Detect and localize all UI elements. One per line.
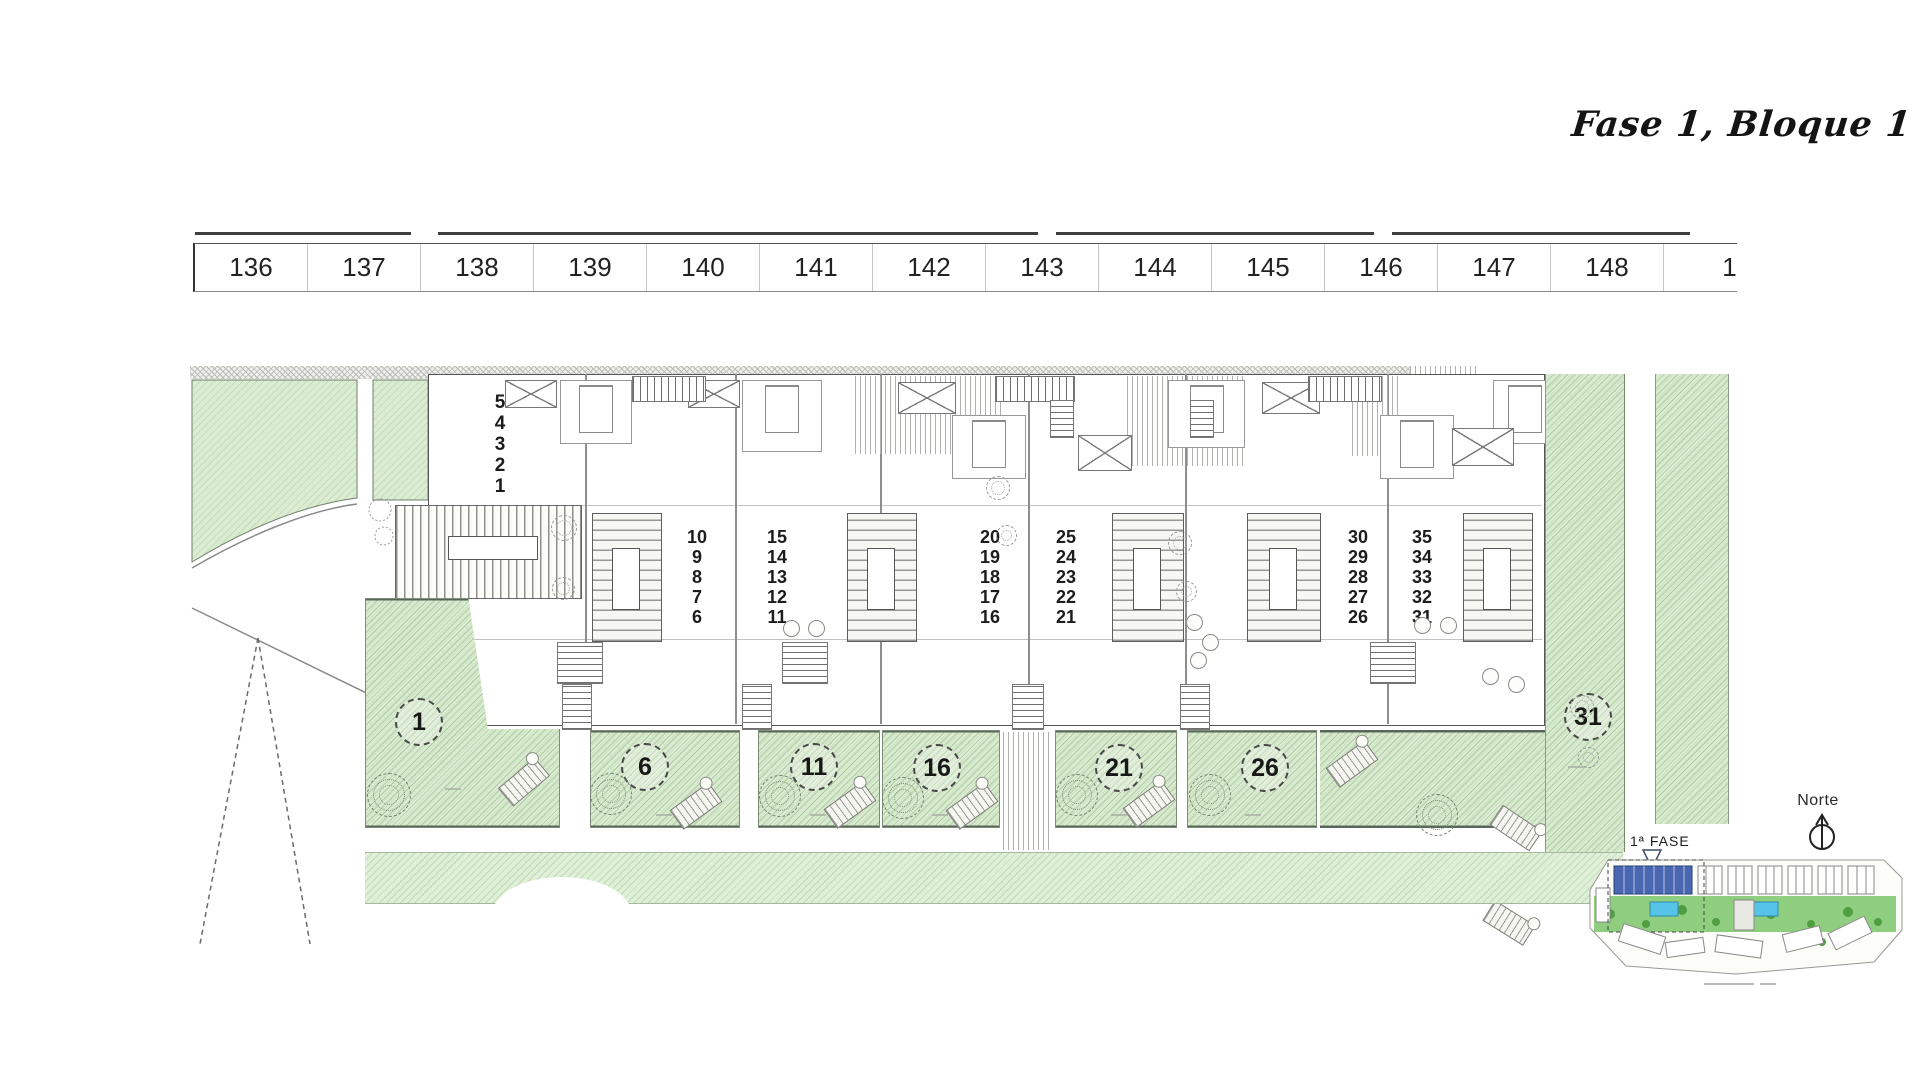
unit-number: 25 (1056, 527, 1076, 547)
driveway-dashed-line (200, 638, 258, 944)
unit-number: 30 (1348, 527, 1368, 547)
plot-number: 6 (638, 753, 652, 782)
ruler-top-line (195, 232, 411, 235)
bed-icon (972, 420, 1006, 468)
phase-label: 1ª FASE (1630, 833, 1690, 849)
round-table-icon (783, 620, 800, 637)
plot-number-circle: 21 (1095, 744, 1143, 792)
plot-number: 26 (1251, 754, 1279, 783)
lounger-icon (1489, 805, 1542, 852)
ruler-cell: 137 (307, 244, 420, 291)
unit-number: 34 (1412, 547, 1432, 567)
tree-icon (551, 515, 577, 541)
north-label: Norte (1786, 792, 1850, 810)
unit-number: 17 (980, 587, 1000, 607)
area-text-smudge (810, 814, 826, 816)
dining-table-icon (448, 536, 538, 560)
tree-icon (1416, 794, 1458, 836)
unit-number: 24 (1056, 547, 1076, 567)
area-text-smudge (932, 814, 948, 816)
plot-number-circle: 16 (913, 744, 961, 792)
unit-number: 4 (495, 413, 506, 434)
ruler-cell: 138 (420, 244, 533, 291)
entry-stair-icon (562, 684, 592, 730)
shaft-x-icon (1078, 435, 1132, 471)
area-text-smudge (445, 788, 461, 790)
tree-icon (367, 773, 411, 817)
dining-table-icon (1483, 548, 1511, 610)
site-plan-drawing: Fase 1, Bloque 1 136 137 138 139 140 141… (0, 0, 1920, 1080)
tree-icon (1056, 774, 1098, 816)
ruler-cell: 142 (872, 244, 985, 291)
bedroom (560, 380, 632, 444)
lounger-icon (1326, 740, 1379, 788)
unit-number: 23 (1056, 567, 1076, 587)
bed-icon (1400, 420, 1434, 468)
unit-number: 6 (692, 607, 702, 627)
party-wall (735, 374, 737, 724)
ruler-cell: 140 (646, 244, 759, 291)
unit-number: 13 (767, 567, 787, 587)
interior-wall (430, 505, 1542, 506)
unit-number: 21 (1056, 607, 1076, 627)
unit-number-stack: 15 14 13 12 11 (754, 527, 800, 627)
unit-number: 7 (692, 587, 702, 607)
unit-number: 2 (495, 455, 506, 476)
garden-strip-hatch (373, 380, 428, 500)
ruler-cell: 144 (1098, 244, 1211, 291)
stair-icon (1050, 400, 1074, 438)
pool-icon (1650, 902, 1678, 916)
lounger-icon (824, 781, 877, 829)
left-garden-hatch (192, 380, 357, 562)
tree-icon (1570, 695, 1594, 719)
unit-number: 10 (687, 527, 707, 547)
tree-icon (590, 773, 632, 815)
bedroom (1380, 415, 1454, 479)
ruler-cell: 145 (1211, 244, 1324, 291)
sidewalk-curve-cut (492, 877, 632, 953)
dining-table-icon (1269, 548, 1297, 610)
round-table-icon (1508, 676, 1525, 693)
unit-number-stack: 10 9 8 7 6 (674, 527, 720, 627)
unit-number: 5 (495, 392, 506, 413)
bed-icon (1508, 385, 1542, 433)
garden-strip-right (1655, 374, 1729, 824)
entry-stair-icon (1180, 684, 1210, 730)
garden-plot-31-run (1320, 730, 1545, 828)
dining-table-icon (867, 548, 895, 610)
unit-number: 32 (1412, 587, 1432, 607)
garden-plot-31-strip (1545, 374, 1625, 852)
round-table-icon (1186, 614, 1203, 631)
unit-number: 29 (1348, 547, 1368, 567)
round-table-icon (1190, 652, 1207, 669)
unit-number: 33 (1412, 567, 1432, 587)
entry-stair-icon (1012, 684, 1044, 730)
party-wall (1028, 374, 1030, 724)
dining-table-icon (1133, 548, 1161, 610)
stair-icon (1308, 376, 1382, 402)
plot-number: 1 (412, 708, 426, 737)
plot-number-ruler: 136 137 138 139 140 141 142 143 144 145 … (193, 243, 1737, 292)
stair-icon (557, 642, 603, 684)
unit-number: 26 (1348, 607, 1368, 627)
plot-number: 21 (1105, 754, 1133, 783)
garden-plot-11: 11 (758, 730, 880, 828)
tree-icon (552, 577, 575, 600)
tree-icon (1168, 531, 1192, 555)
round-table-icon (1414, 617, 1431, 634)
unit-number: 19 (980, 547, 1000, 567)
unit-number: 28 (1348, 567, 1368, 587)
lounger-icon (946, 782, 999, 830)
plot-number: 11 (801, 753, 827, 782)
unit-number-stack: 5 4 3 2 1 (477, 392, 523, 497)
stair-icon (782, 642, 828, 684)
unit-number: 3 (495, 434, 506, 455)
bed-icon (765, 385, 799, 433)
tree-icon (882, 777, 924, 819)
unit-number: 18 (980, 567, 1000, 587)
area-text-smudge (1111, 814, 1127, 816)
tree-icon (375, 527, 393, 545)
entry-stair-icon (742, 684, 772, 730)
stair-icon (1190, 400, 1214, 438)
plot-number-circle: 1 (395, 698, 443, 746)
tree-icon (369, 499, 391, 521)
ruler-cell: 148 (1550, 244, 1663, 291)
ruler-top-line (1392, 232, 1690, 235)
lounger-icon (1482, 900, 1535, 946)
driveway-dashed-line (258, 638, 310, 944)
garden-plot-26: 26 (1187, 730, 1317, 828)
ruler-cell: 136 (195, 244, 307, 291)
unit-number: 1 (495, 476, 506, 497)
tree-icon (1189, 774, 1231, 816)
unit-number: 27 (1348, 587, 1368, 607)
stair-icon (632, 376, 706, 402)
ruler-cell: 141 (759, 244, 872, 291)
unit-number: 16 (980, 607, 1000, 627)
unit-number: 35 (1412, 527, 1432, 547)
tree-icon (1578, 747, 1599, 768)
tree-icon (1176, 581, 1197, 602)
area-text-smudge (1568, 766, 1584, 768)
unit-number: 22 (1056, 587, 1076, 607)
garden-plot-16: 16 (882, 730, 1000, 828)
round-table-icon (1202, 634, 1219, 651)
unit-number-stack: 25 24 23 22 21 (1043, 527, 1089, 627)
key-plan: 1ª FASE (1586, 830, 1916, 995)
unit-number-stack: 35 34 33 32 31 (1399, 527, 1445, 627)
bedroom (742, 380, 822, 452)
tree-icon (986, 476, 1010, 500)
round-table-icon (1482, 668, 1499, 685)
lounger-icon (498, 757, 550, 806)
area-text-smudge (656, 814, 672, 816)
ruler-cell: 146 (1324, 244, 1437, 291)
round-table-icon (808, 620, 825, 637)
ruler-cell: 147 (1437, 244, 1550, 291)
stair-icon (995, 376, 1075, 402)
bed-icon (579, 385, 613, 433)
ruler-cell: 149 (1663, 244, 1737, 291)
ruler-top-line (1056, 232, 1374, 235)
shaft-x-icon (898, 382, 956, 414)
unit-number: 8 (692, 567, 702, 587)
bedroom (952, 415, 1026, 479)
lounger-icon (670, 782, 723, 830)
unit-number-stack: 30 29 28 27 26 (1335, 527, 1381, 627)
path-stripes (1003, 732, 1051, 850)
phase-1-block (1614, 866, 1692, 894)
stair-icon (1370, 642, 1416, 684)
unit-number: 12 (767, 587, 787, 607)
garden-plot-6: 6 (590, 730, 740, 828)
ruler-cell: 139 (533, 244, 646, 291)
plot-number: 16 (923, 754, 951, 783)
unit-number: 9 (692, 547, 702, 567)
round-table-icon (1440, 617, 1457, 634)
unit-number: 14 (767, 547, 787, 567)
area-text-smudge (1245, 814, 1261, 816)
ruler-top-line (438, 232, 1038, 235)
ruler-cell: 143 (985, 244, 1098, 291)
plot-number-circle: 26 (1241, 744, 1289, 792)
shaft-x-icon (1452, 428, 1514, 466)
drawing-title: Fase 1, Bloque 1 (1570, 104, 1914, 145)
tree-icon (759, 775, 801, 817)
tree-icon (996, 525, 1017, 546)
unit-number: 15 (767, 527, 787, 547)
garden-plot-21: 21 (1055, 730, 1177, 828)
dining-table-icon (612, 548, 640, 610)
